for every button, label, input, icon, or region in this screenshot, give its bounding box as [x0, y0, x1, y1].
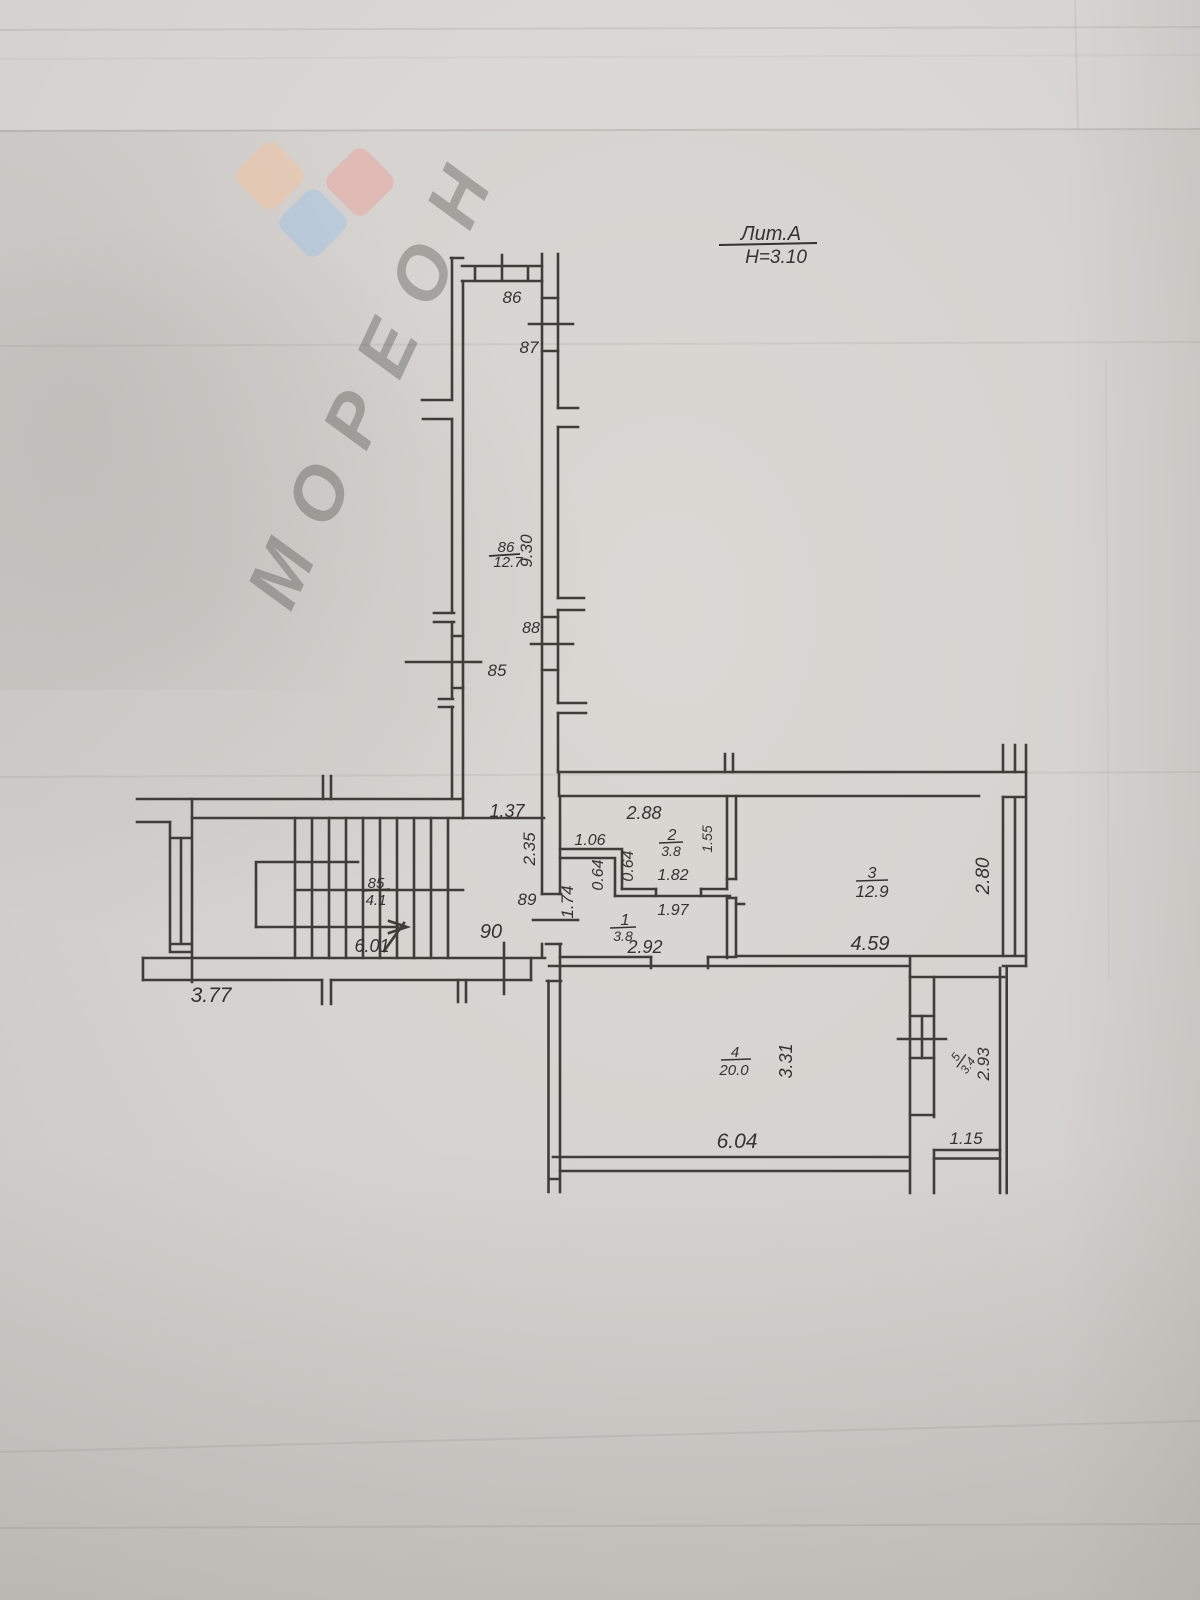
svg-text:9.30: 9.30: [517, 534, 536, 568]
svg-text:3.8: 3.8: [661, 843, 681, 859]
svg-text:2: 2: [667, 827, 677, 844]
svg-text:Лит.А: Лит.А: [739, 223, 801, 245]
svg-text:3: 3: [868, 865, 877, 882]
svg-text:2.80: 2.80: [973, 857, 994, 895]
svg-text:1.15: 1.15: [949, 1129, 983, 1148]
svg-text:86: 86: [503, 288, 522, 307]
svg-text:85: 85: [488, 661, 507, 680]
svg-text:3.77: 3.77: [191, 984, 233, 1007]
svg-text:0.64: 0.64: [590, 859, 607, 890]
svg-text:3.31: 3.31: [776, 1043, 796, 1078]
svg-text:1.74: 1.74: [558, 885, 577, 918]
svg-text:12.9: 12.9: [855, 882, 889, 901]
svg-text:88: 88: [522, 620, 540, 637]
svg-text:4: 4: [731, 1044, 739, 1061]
svg-text:89: 89: [518, 890, 537, 909]
svg-text:2.88: 2.88: [625, 803, 661, 823]
svg-text:87: 87: [520, 338, 539, 357]
svg-text:4.1: 4.1: [366, 892, 387, 909]
svg-text:1: 1: [621, 912, 630, 929]
svg-text:20.0: 20.0: [718, 1062, 749, 1079]
svg-text:1.82: 1.82: [657, 867, 688, 884]
svg-text:90: 90: [480, 921, 502, 943]
svg-text:2.35: 2.35: [520, 832, 539, 867]
svg-text:1.97: 1.97: [657, 902, 689, 919]
svg-text:Н=3.10: Н=3.10: [745, 247, 807, 268]
svg-text:2.92: 2.92: [626, 937, 662, 957]
svg-text:6.01: 6.01: [354, 936, 389, 956]
svg-text:2.93: 2.93: [974, 1047, 993, 1082]
svg-text:6.04: 6.04: [717, 1130, 758, 1153]
svg-text:1.55: 1.55: [699, 825, 715, 852]
svg-text:4.59: 4.59: [851, 933, 890, 955]
svg-text:1.06: 1.06: [574, 832, 605, 849]
svg-text:1.37: 1.37: [489, 801, 525, 821]
svg-text:0.64: 0.64: [620, 850, 637, 881]
